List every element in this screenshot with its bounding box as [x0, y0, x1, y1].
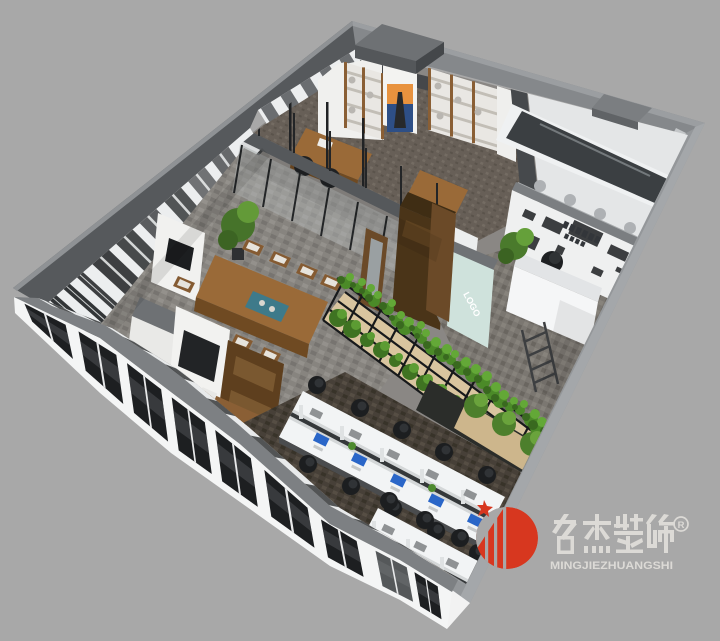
- svg-text:R: R: [678, 520, 685, 531]
- svg-text:MINGJIEZHUANGSHI: MINGJIEZHUANGSHI: [550, 560, 673, 572]
